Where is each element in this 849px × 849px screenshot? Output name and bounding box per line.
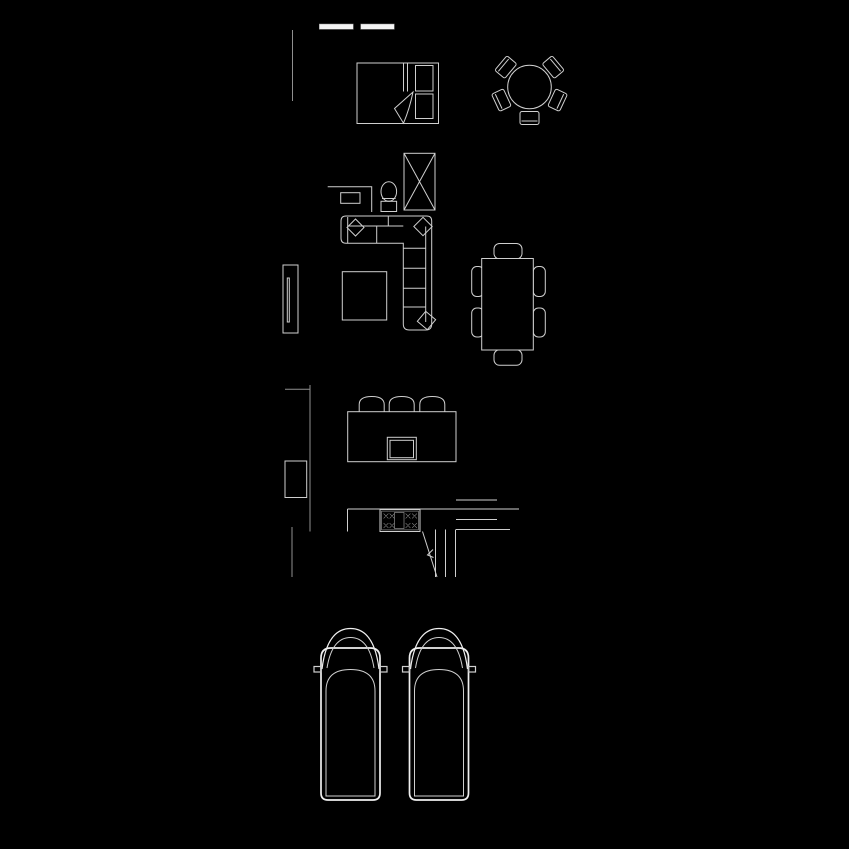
- chair: [494, 244, 522, 260]
- chair: [495, 56, 517, 79]
- wall-window-bars-line: [361, 24, 395, 29]
- kitchen-tall-cabinets[interactable]: [285, 385, 310, 532]
- throw-pillow: [414, 217, 432, 235]
- car-left[interactable]: [314, 629, 387, 801]
- chair: [533, 267, 545, 297]
- throw-pillow: [417, 311, 435, 329]
- blanket-fold: [395, 92, 414, 123]
- kitchen-island-line: [348, 412, 456, 462]
- round-dining-table-line: [508, 65, 552, 109]
- pillow: [416, 66, 434, 92]
- chair-back: [557, 94, 564, 109]
- pillow: [416, 94, 434, 119]
- chair: [520, 112, 539, 125]
- coffee-table[interactable]: [342, 272, 386, 320]
- island-sink-basin: [390, 440, 414, 457]
- side-mirror: [403, 667, 410, 673]
- refrigerator: [285, 461, 307, 498]
- tv-console[interactable]: [283, 265, 298, 333]
- windshield-inner: [416, 638, 463, 669]
- tv-console-line: [283, 265, 298, 333]
- side-mirror: [314, 667, 321, 673]
- griddle: [395, 513, 405, 529]
- sofa-sectional[interactable]: [341, 216, 436, 330]
- car-body: [321, 648, 380, 800]
- wall-window-bars-line: [319, 24, 353, 29]
- car-right[interactable]: [403, 629, 476, 801]
- coffee-table-line: [342, 272, 386, 320]
- side-mirror: [469, 667, 476, 673]
- cabin: [326, 670, 375, 797]
- range-stove[interactable]: [380, 510, 420, 532]
- kitchen-island[interactable]: [348, 397, 456, 462]
- table-top: [482, 259, 534, 351]
- car-body: [410, 648, 469, 800]
- chair: [494, 350, 522, 366]
- bath-vanity[interactable]: [328, 187, 372, 212]
- toilet[interactable]: [381, 182, 397, 212]
- chair-back: [495, 94, 502, 109]
- shower-stall[interactable]: [404, 153, 435, 210]
- chair-back: [550, 59, 560, 71]
- bar-stool: [389, 397, 414, 412]
- dining-table-rectangular[interactable]: [472, 244, 546, 366]
- bath-vanity-line: [328, 187, 372, 212]
- cabin: [415, 670, 464, 797]
- floor-plan: [0, 0, 849, 849]
- side-mirror: [380, 667, 387, 673]
- chair: [542, 56, 564, 79]
- bar-stool: [420, 397, 445, 412]
- chair: [533, 308, 545, 337]
- throw-pillow: [347, 219, 364, 236]
- chair-back: [498, 59, 508, 71]
- round-dining-table[interactable]: [491, 56, 567, 125]
- direction-arrow: [423, 532, 438, 578]
- tank: [381, 201, 397, 211]
- burners: [384, 514, 417, 528]
- wall-window-bars[interactable]: [319, 24, 394, 29]
- cad-viewport: [0, 0, 849, 849]
- windshield-inner: [327, 638, 374, 669]
- bed-double[interactable]: [357, 63, 439, 124]
- tv-screen: [287, 278, 289, 322]
- bar-stool: [359, 397, 384, 412]
- staircase[interactable]: [423, 500, 520, 577]
- sink: [341, 193, 360, 204]
